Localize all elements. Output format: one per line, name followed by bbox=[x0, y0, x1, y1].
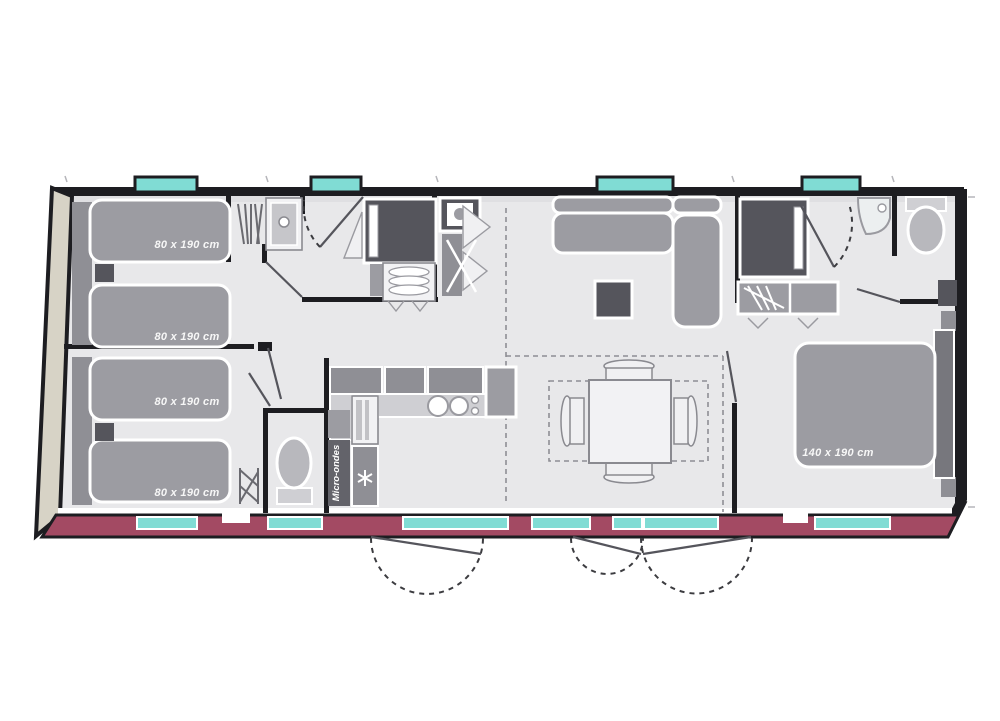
nightstand-2 bbox=[95, 423, 114, 441]
chair-right-seat bbox=[674, 398, 688, 444]
bed-size-label: 140 x 190 cm bbox=[802, 447, 874, 459]
window-top-2 bbox=[311, 177, 361, 192]
shower-1-door bbox=[369, 205, 378, 257]
dining-table bbox=[589, 380, 671, 463]
microwave-label: Micro-ondes bbox=[331, 445, 342, 501]
dim-tick bbox=[65, 176, 67, 182]
window-bottom-2 bbox=[268, 517, 322, 529]
door-leaf-terrace-2 bbox=[573, 537, 641, 554]
door-swing-terrace-2 bbox=[571, 538, 643, 574]
corner-sink-icon bbox=[858, 198, 890, 234]
toilet-icon bbox=[277, 438, 312, 504]
fridge-icon bbox=[352, 446, 378, 506]
wall-bath2-toilet bbox=[892, 196, 897, 256]
dim-tick bbox=[732, 176, 734, 182]
kitchen-wall-cabinet-3 bbox=[428, 367, 483, 394]
kitchen-wall-cabinet-1 bbox=[330, 367, 382, 394]
window-top-1 bbox=[135, 177, 197, 192]
master-nightstand-top bbox=[941, 311, 956, 331]
window-bottom-1 bbox=[137, 517, 197, 529]
kitchen-wall-cabinet-2 bbox=[385, 367, 425, 394]
shower-2-door bbox=[794, 207, 803, 269]
door-threshold-1 bbox=[222, 513, 250, 523]
coffee-table bbox=[595, 281, 632, 318]
window-top-4 bbox=[802, 177, 860, 192]
chair-left-seat bbox=[570, 398, 584, 444]
floorplan-canvas: 80 x 190 cm 80 x 190 cm 80 x 190 cm 80 x… bbox=[0, 0, 1000, 721]
wall-wc-left bbox=[263, 408, 268, 513]
dim-tick bbox=[892, 176, 894, 182]
door-leaf-terrace-1 bbox=[371, 537, 481, 554]
wall-jamb bbox=[258, 342, 272, 351]
floorplan-drawing: 80 x 190 cm 80 x 190 cm 80 x 190 cm 80 x… bbox=[0, 0, 1000, 721]
window-bottom-3 bbox=[403, 517, 508, 529]
dim-tick bbox=[436, 176, 438, 182]
oven-icon bbox=[352, 396, 378, 444]
master-cabinet bbox=[938, 280, 957, 306]
nightstand-1 bbox=[95, 264, 114, 282]
window-bottom-7 bbox=[815, 517, 890, 529]
window-bottom-4 bbox=[532, 517, 590, 529]
toilet-2-icon bbox=[906, 197, 946, 253]
kitchen-tall-unit bbox=[486, 367, 516, 417]
bed-size-label: 80 x 190 cm bbox=[154, 239, 219, 251]
bed-size-label: 80 x 190 cm bbox=[154, 396, 219, 408]
door-leaf-terrace-3 bbox=[643, 537, 751, 554]
vanity-sink-icon bbox=[266, 198, 302, 250]
bed-size-label: 80 x 190 cm bbox=[154, 331, 219, 343]
window-bottom-5 bbox=[613, 517, 642, 529]
door-threshold-2 bbox=[783, 513, 808, 523]
wall-wc-top bbox=[263, 408, 327, 413]
master-nightstand-bottom bbox=[941, 477, 956, 497]
bed-size-label: 80 x 190 cm bbox=[154, 487, 219, 499]
wall-master-left bbox=[732, 403, 737, 513]
window-bottom-6 bbox=[644, 517, 718, 529]
bed-single-1 bbox=[90, 200, 230, 262]
dim-tick bbox=[266, 176, 268, 182]
microwave-cabinet bbox=[328, 410, 350, 438]
bed-single-3 bbox=[90, 358, 230, 420]
master-headboard bbox=[934, 330, 954, 478]
window-top-3 bbox=[597, 177, 673, 192]
